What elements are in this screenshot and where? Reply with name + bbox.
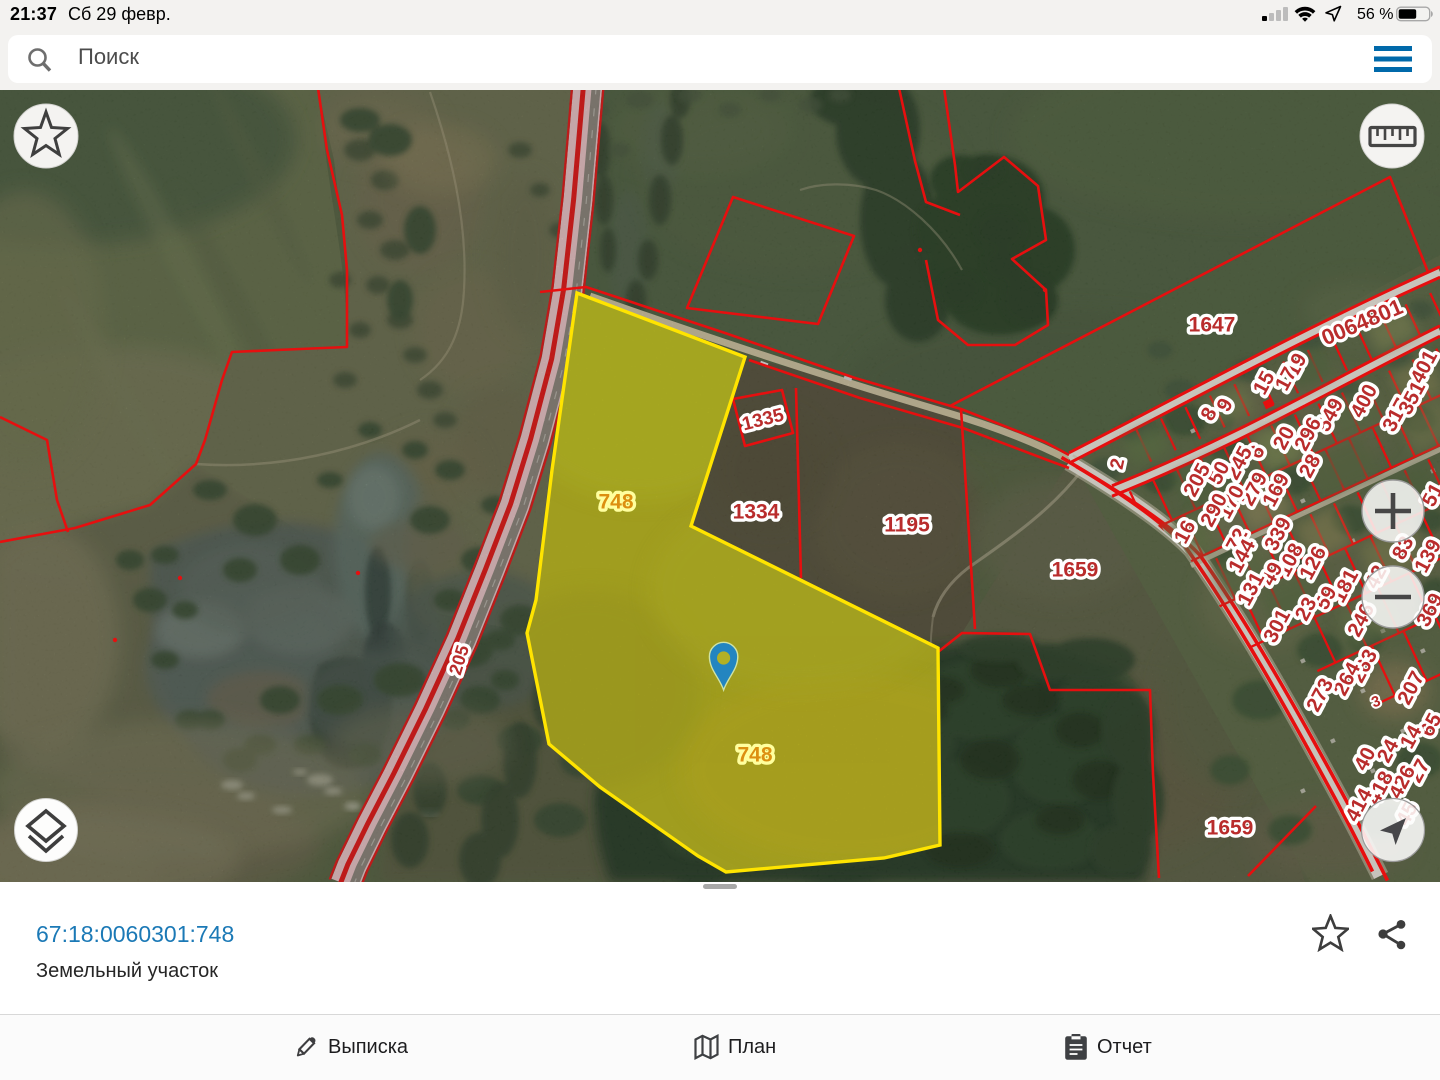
svg-text:748: 748 bbox=[598, 491, 633, 514]
svg-text:1195: 1195 bbox=[884, 514, 930, 537]
svg-text:748: 748 bbox=[737, 744, 772, 767]
svg-text:1659: 1659 bbox=[1207, 817, 1254, 840]
svg-text:1647: 1647 bbox=[1189, 314, 1236, 337]
svg-text:1659: 1659 bbox=[1052, 559, 1099, 582]
svg-text:56 %: 56 % bbox=[1357, 6, 1393, 23]
svg-text:1334: 1334 bbox=[733, 501, 780, 524]
